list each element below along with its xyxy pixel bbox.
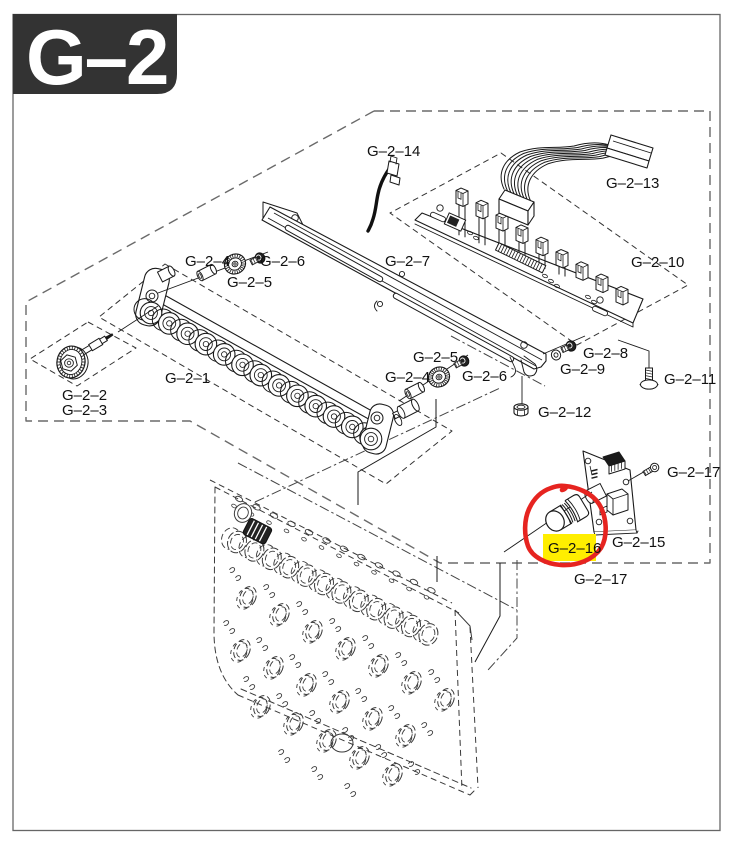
svg-text:G–2–5: G–2–5: [227, 274, 272, 291]
svg-text:G–2–16: G–2–16: [548, 540, 601, 557]
svg-text:G–2–15: G–2–15: [612, 534, 665, 551]
svg-text:G–2–7: G–2–7: [385, 253, 430, 270]
svg-text:G–2–3: G–2–3: [62, 402, 107, 419]
svg-text:G–2–14: G–2–14: [367, 143, 420, 160]
svg-text:G–2–6: G–2–6: [462, 368, 507, 385]
svg-text:G–2–4: G–2–4: [385, 369, 430, 386]
svg-text:G–2–9: G–2–9: [560, 361, 605, 378]
svg-text:G–2: G–2: [26, 13, 167, 101]
svg-text:G–2–13: G–2–13: [606, 175, 659, 192]
svg-text:G–2–6: G–2–6: [260, 253, 305, 270]
svg-text:G–2–17: G–2–17: [667, 464, 720, 481]
svg-text:G–2–5: G–2–5: [413, 349, 458, 366]
svg-text:G–2–4: G–2–4: [185, 253, 230, 270]
svg-text:G–2–10: G–2–10: [631, 254, 684, 271]
svg-text:G–2–1: G–2–1: [165, 370, 210, 387]
svg-text:G–2–8: G–2–8: [583, 345, 628, 362]
svg-text:G–2–12: G–2–12: [538, 404, 591, 421]
svg-text:G–2–17: G–2–17: [574, 571, 627, 588]
svg-text:G–2–11: G–2–11: [664, 371, 716, 388]
